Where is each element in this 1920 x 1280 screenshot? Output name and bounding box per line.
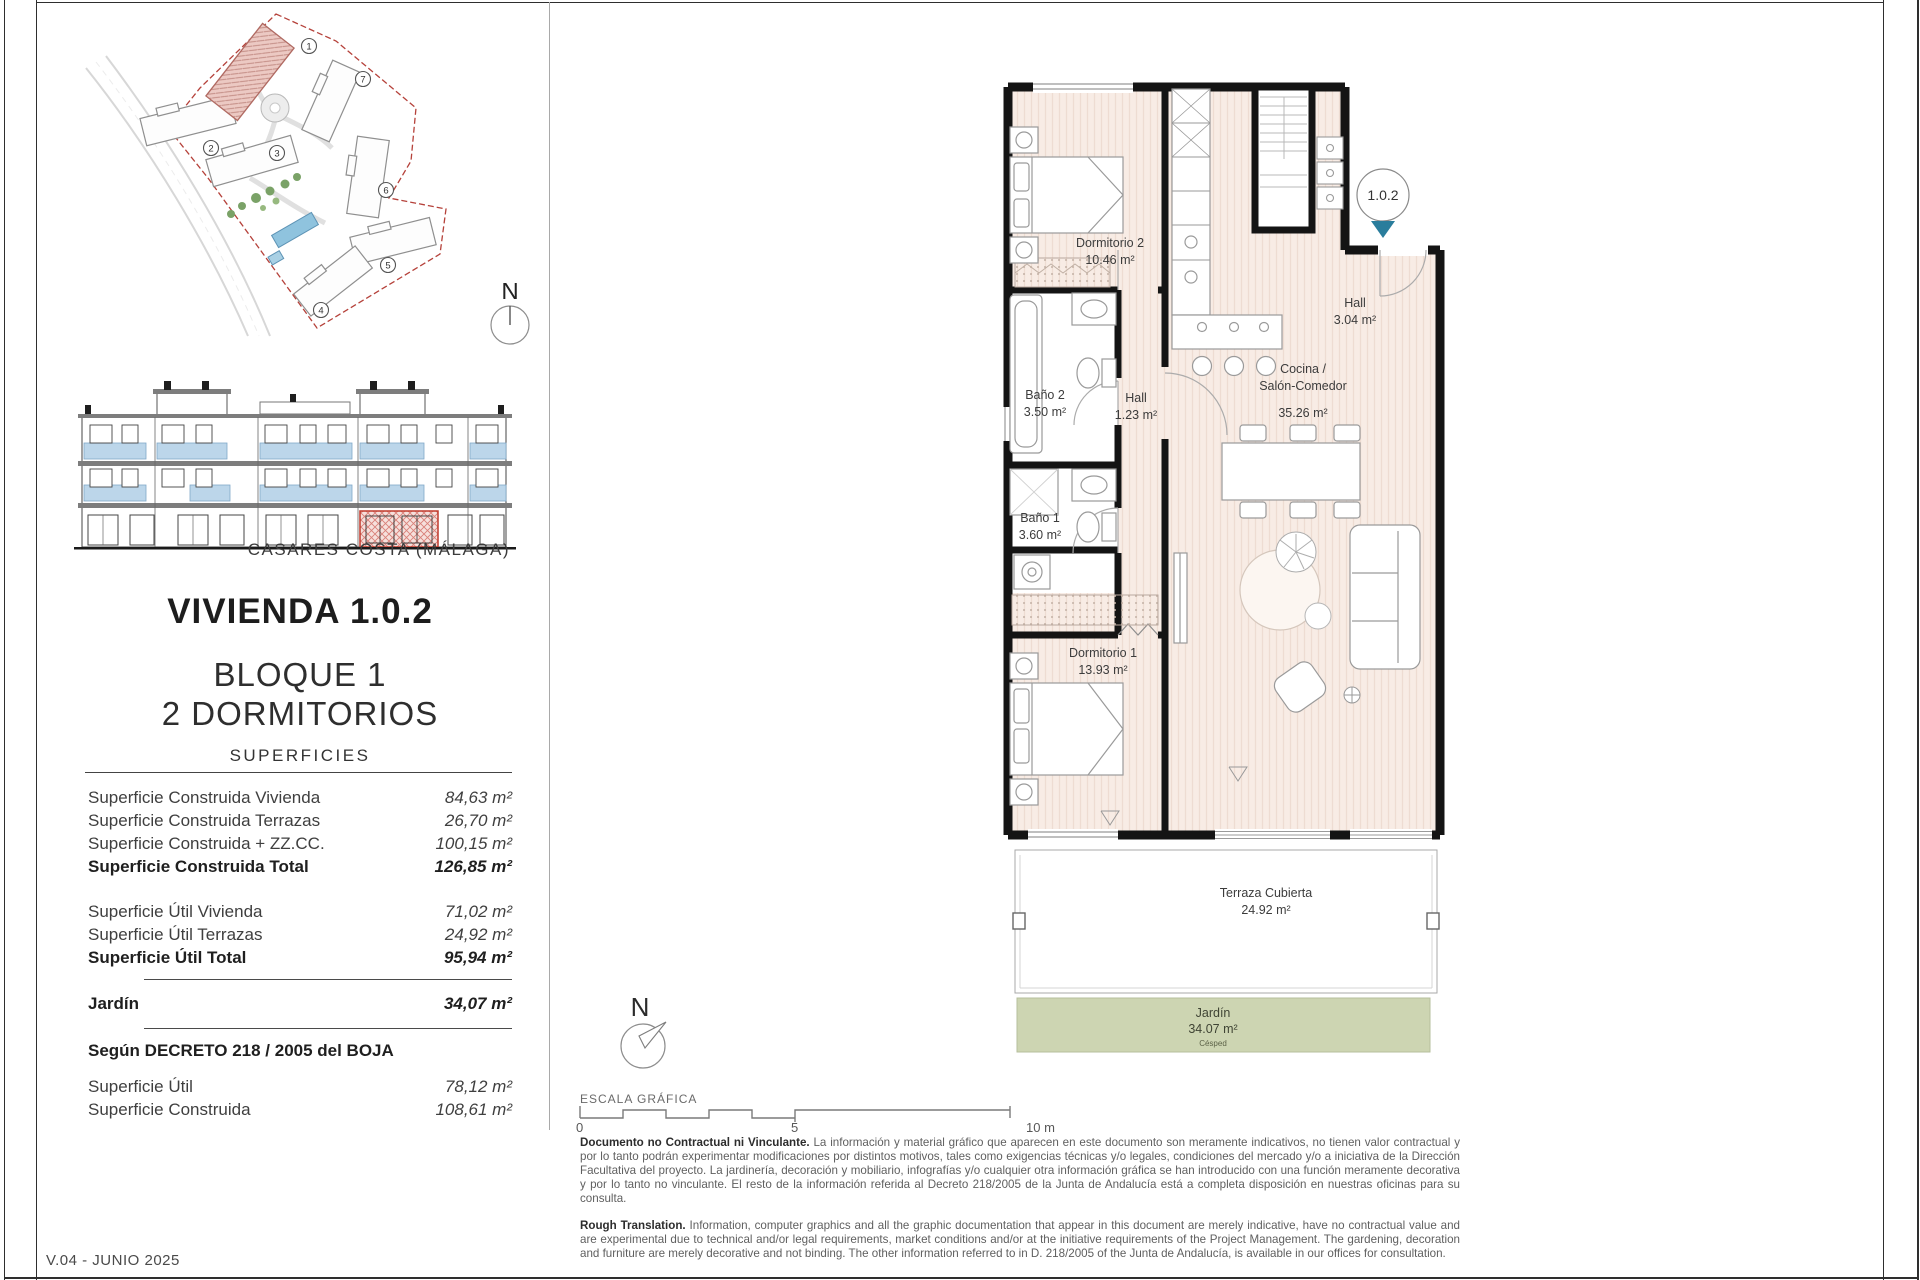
disclaimer-en-lead: Rough Translation. bbox=[580, 1219, 686, 1232]
site-badge-5: 5 bbox=[385, 260, 390, 271]
row-value: 84,63 m² bbox=[445, 786, 512, 809]
disclaimer-es: Documento no Contractual ni Vinculante. … bbox=[580, 1136, 1460, 1206]
frame-bottom bbox=[4, 1277, 1918, 1279]
row-label: Superficie Útil Terrazas bbox=[88, 923, 262, 946]
row-value: 108,61 m² bbox=[435, 1098, 512, 1121]
decreto-heading: Según DECRETO 218 / 2005 del BOJA bbox=[88, 1039, 512, 1063]
bar-stools bbox=[1193, 357, 1276, 376]
disclaimer-es-lead: Documento no Contractual ni Vinculante. bbox=[580, 1136, 810, 1149]
room-label: Cocina / bbox=[1280, 362, 1326, 376]
site-badge-7: 7 bbox=[360, 74, 365, 85]
surfaces-rule-top bbox=[85, 772, 512, 773]
table-row: Superficie Construida Vivienda84,63 m² bbox=[88, 786, 512, 809]
scale-compass-icon: N bbox=[610, 998, 682, 1072]
table-row-jardin: Jardín34,07 m² bbox=[88, 990, 512, 1018]
frame-right-inner bbox=[1883, 0, 1884, 1280]
block-subtitle: BLOQUE 1 2 DORMITORIOS bbox=[60, 655, 540, 733]
floor-plan-svg: 1.0.2 Dormitorio 2 10.46 m² Baño 2 3.50 … bbox=[1000, 75, 1450, 1065]
room-label: Jardín bbox=[1196, 1006, 1231, 1020]
brochure-page: 1 2 3 4 5 6 7 N bbox=[0, 0, 1920, 1280]
row-value: 24,92 m² bbox=[445, 923, 512, 946]
surfaces-heading: SUPERFICIES bbox=[60, 746, 540, 766]
dining-set bbox=[1222, 425, 1360, 518]
site-plan-svg: 1 2 3 4 5 6 7 bbox=[80, 8, 480, 338]
room-area: 34.07 m² bbox=[1188, 1022, 1237, 1036]
row-value: 71,02 m² bbox=[445, 900, 512, 923]
table-row: Superficie Útil Terrazas24,92 m² bbox=[88, 923, 512, 946]
row-label: Superficie Construida Terrazas bbox=[88, 809, 320, 832]
site-roundabout-center bbox=[270, 103, 280, 113]
frame-top bbox=[36, 2, 1883, 3]
panel-divider bbox=[549, 2, 550, 1130]
compass-letter: N bbox=[631, 998, 650, 1022]
tv-bench bbox=[1174, 553, 1187, 643]
table-row-total-construida: Superficie Construida Total126,85 m² bbox=[88, 855, 512, 878]
room-area: 24.92 m² bbox=[1241, 903, 1290, 917]
room-label: Salón-Comedor bbox=[1259, 379, 1347, 393]
bedrooms-line: 2 DORMITORIOS bbox=[60, 694, 540, 733]
terrace bbox=[1013, 850, 1439, 993]
site-badge-1: 1 bbox=[306, 41, 311, 52]
row-value: 26,70 m² bbox=[445, 809, 512, 832]
room-area: 10.46 m² bbox=[1085, 253, 1134, 267]
north-compass-icon: N bbox=[478, 283, 544, 349]
row-label: Superficie Útil Vivienda bbox=[88, 900, 263, 923]
table-row: Superficie Construida + ZZ.CC.100,15 m² bbox=[88, 832, 512, 855]
frame-right-outer bbox=[1917, 0, 1919, 1280]
scale-tick-0: 0 bbox=[576, 1120, 583, 1135]
location-label: CASARES COSTA (MÁLAGA) bbox=[220, 540, 510, 560]
row-value: 95,94 m² bbox=[444, 946, 512, 969]
row-label: Jardín bbox=[88, 990, 139, 1018]
room-area: 3.04 m² bbox=[1334, 313, 1376, 327]
room-label: Hall bbox=[1125, 391, 1147, 405]
row-label: Superficie Construida + ZZ.CC. bbox=[88, 832, 325, 855]
room-area: 13.93 m² bbox=[1078, 663, 1127, 677]
table-row: Superficie Construida108,61 m² bbox=[88, 1098, 512, 1121]
site-badge-2: 2 bbox=[208, 143, 213, 154]
room-label: Terraza Cubierta bbox=[1220, 886, 1312, 900]
site-badge-3: 3 bbox=[274, 148, 279, 159]
disclaimer-en: Rough Translation. Information, computer… bbox=[580, 1219, 1460, 1261]
garden-surface-label: Césped bbox=[1199, 1039, 1227, 1048]
frame-left-outer bbox=[4, 0, 5, 1280]
row-label: Superficie Construida Vivienda bbox=[88, 786, 320, 809]
stair-shaft bbox=[1255, 87, 1312, 230]
room-label: Dormitorio 2 bbox=[1076, 236, 1144, 250]
disclaimer-block: Documento no Contractual ni Vinculante. … bbox=[580, 1136, 1460, 1274]
site-pool bbox=[259, 212, 324, 265]
room-label: Baño 1 bbox=[1020, 511, 1060, 525]
table-row-total-util: Superficie Útil Total95,94 m² bbox=[88, 946, 512, 969]
scale-tick-5: 5 bbox=[791, 1120, 798, 1135]
row-value: 100,15 m² bbox=[435, 832, 512, 855]
washer bbox=[1014, 555, 1050, 589]
room-area: 3.50 m² bbox=[1024, 405, 1066, 419]
entry-closet bbox=[1317, 137, 1343, 209]
site-badge-6: 6 bbox=[383, 185, 388, 196]
table-row: Superficie Útil78,12 m² bbox=[88, 1075, 512, 1098]
row-label: Superficie Útil bbox=[88, 1075, 193, 1098]
table-rule bbox=[144, 979, 512, 980]
page-title: VIVIENDA 1.0.2 bbox=[60, 592, 540, 632]
table-row: Superficie Construida Terrazas26,70 m² bbox=[88, 809, 512, 832]
room-label: Baño 2 bbox=[1025, 388, 1065, 402]
room-area: 1.23 m² bbox=[1115, 408, 1157, 422]
surfaces-table: Superficie Construida Vivienda84,63 m² S… bbox=[88, 786, 512, 1121]
sofa bbox=[1350, 525, 1420, 669]
table-row: Superficie Útil Vivienda71,02 m² bbox=[88, 900, 512, 923]
version-label: V.04 - JUNIO 2025 bbox=[46, 1252, 180, 1269]
room-label: Hall bbox=[1344, 296, 1366, 310]
site-badge-4: 4 bbox=[318, 305, 323, 316]
row-value: 34,07 m² bbox=[444, 990, 512, 1018]
scale-tick-10: 10 m bbox=[1026, 1120, 1055, 1135]
row-label: Superficie Construida bbox=[88, 1098, 251, 1121]
compass-letter: N bbox=[501, 283, 518, 305]
unit-badge-label: 1.0.2 bbox=[1367, 187, 1398, 203]
floor-lamp bbox=[1344, 687, 1360, 703]
room-label: Dormitorio 1 bbox=[1069, 646, 1137, 660]
room-area: 3.60 m² bbox=[1019, 528, 1061, 542]
scale-bar bbox=[575, 1100, 1035, 1130]
block-line: BLOQUE 1 bbox=[60, 655, 540, 694]
row-label: Superficie Útil Total bbox=[88, 946, 246, 969]
row-label: Superficie Construida Total bbox=[88, 855, 309, 878]
room-area: 35.26 m² bbox=[1278, 406, 1327, 420]
table-rule bbox=[144, 1028, 512, 1029]
row-value: 78,12 m² bbox=[445, 1075, 512, 1098]
row-value: 126,85 m² bbox=[435, 855, 513, 878]
frame-left-inner bbox=[36, 0, 37, 1280]
